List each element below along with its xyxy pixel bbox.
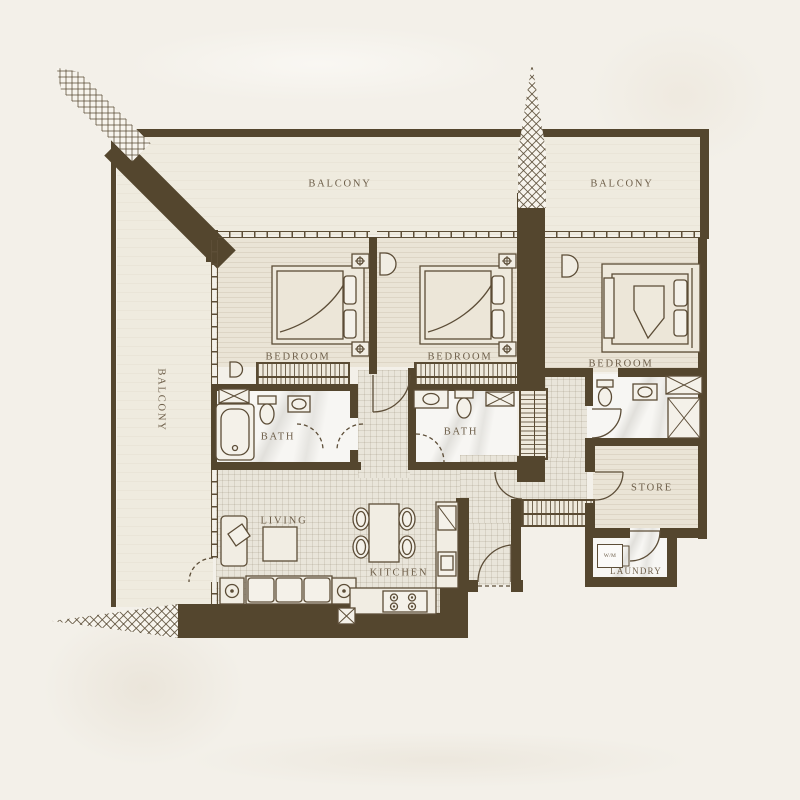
dresser-bedroom-1 [230, 362, 243, 377]
floor-plan-page: { "labels": { "balcony_top_left": "BALCO… [0, 0, 800, 800]
room-label-balcony-top-left: BALCONY [308, 179, 371, 190]
bath-2-fixtures [414, 390, 514, 418]
room-label-balcony-top-right: BALCONY [590, 179, 653, 190]
washing-machine-label: W/M [604, 553, 617, 559]
door-arc-bath-1-right [337, 424, 363, 450]
stove [383, 591, 427, 612]
room-label-kitchen: KITCHEN [370, 568, 429, 579]
door-arc-entry [478, 545, 511, 582]
room-label-balcony-side: BALCONY [156, 368, 167, 431]
coffee-table [263, 527, 297, 561]
toilet [258, 396, 276, 404]
room-label-bedroom-3: BEDROOM [588, 359, 653, 370]
dresser-bedroom-3 [562, 255, 578, 277]
room-label-bath-2: BATH [444, 427, 479, 438]
bathtub [216, 404, 254, 460]
bath-1-fixtures [216, 389, 310, 460]
room-label-bath-1: BATH [261, 432, 296, 443]
furniture-layer [0, 0, 800, 800]
door-arc-bedroom-2 [373, 375, 410, 412]
room-label-bedroom-2: BEDROOM [427, 352, 492, 363]
door-arc-bath-3 [592, 409, 621, 438]
bed-1 [272, 254, 369, 356]
door-arc-hall [495, 472, 522, 499]
door-arc-bath-2 [416, 434, 444, 462]
room-label-bedroom-1: BEDROOM [265, 352, 330, 363]
door-arc-laundry [630, 531, 660, 561]
toilet [455, 390, 473, 398]
bed-2 [420, 254, 516, 356]
door-arc-store [595, 472, 623, 500]
door-arc-balcony [189, 558, 213, 582]
toilet [597, 380, 613, 387]
room-label-laundry: LAUNDRY [610, 566, 662, 576]
room-label-store: STORE [631, 483, 673, 494]
dining-table [369, 504, 399, 562]
sink [414, 390, 448, 408]
living-furniture [220, 516, 356, 604]
door-arc-bath-1-left [297, 424, 323, 450]
washing-machine: W/M [597, 544, 623, 568]
laundry-fixtures [623, 546, 629, 566]
bed-3 [602, 264, 700, 352]
dresser-bedroom-2 [380, 253, 396, 275]
dining-set [353, 504, 415, 562]
room-label-living: LIVING [261, 516, 308, 527]
